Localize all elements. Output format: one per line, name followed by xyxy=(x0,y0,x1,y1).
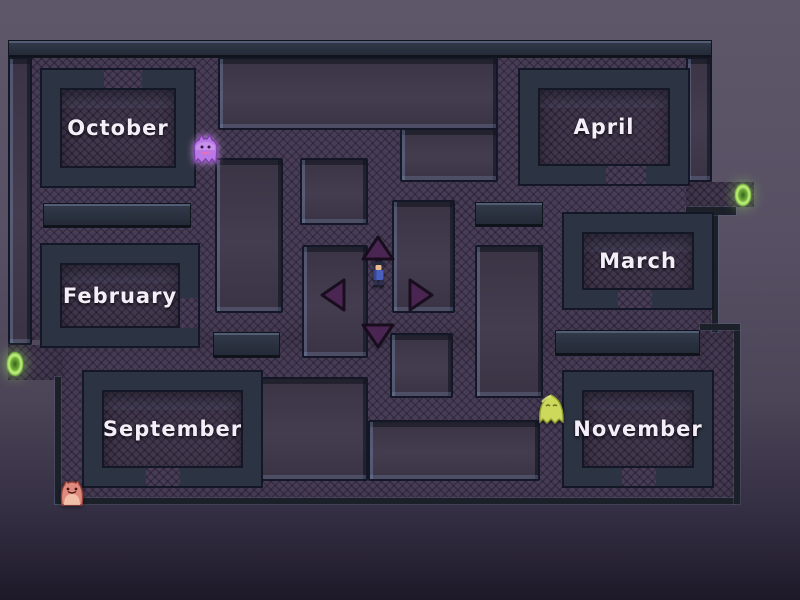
maze-wall xyxy=(258,377,368,481)
game-stage: October April February March September N… xyxy=(0,0,800,600)
red-monster-icon xyxy=(60,478,84,506)
maze-edge-ext-top xyxy=(700,324,740,330)
maze-edge-bottom xyxy=(55,498,734,504)
left-arrow-icon xyxy=(319,277,347,313)
room-label-september: September xyxy=(103,417,242,441)
maze-wall xyxy=(475,202,543,227)
maze-wall xyxy=(368,420,540,481)
right-arrow-button[interactable] xyxy=(407,259,435,295)
maze-wall xyxy=(215,158,283,313)
room-door-march xyxy=(618,290,652,308)
exit-portal-left xyxy=(4,348,26,380)
up-arrow-button[interactable] xyxy=(360,220,396,248)
room-door-april xyxy=(606,166,646,184)
maze-edge-right-lower xyxy=(734,330,740,504)
room-label-april: April xyxy=(573,115,634,139)
maze-wall xyxy=(400,128,498,182)
maze-wall xyxy=(390,333,453,398)
room-label-february: February xyxy=(63,284,177,308)
maze: October April February March September N… xyxy=(8,40,754,510)
room-april: April xyxy=(520,70,688,184)
maze-edge-right-mid xyxy=(712,212,718,332)
maze-wall-top-border xyxy=(8,40,712,58)
room-february: February xyxy=(42,245,198,346)
down-arrow-icon xyxy=(360,322,396,350)
maze-wall xyxy=(475,245,543,398)
room-door-october xyxy=(104,70,142,88)
left-arrow-button[interactable] xyxy=(319,259,347,295)
room-label-october: October xyxy=(67,116,168,140)
right-arrow-icon xyxy=(407,277,435,313)
room-label-march: March xyxy=(599,249,677,273)
room-label-november: November xyxy=(573,417,702,441)
maze-wall-left-border xyxy=(8,57,32,345)
maze-wall-right-border xyxy=(686,57,712,182)
purple-ghost-icon xyxy=(192,133,219,164)
room-door-february xyxy=(180,298,198,328)
red-monster-enemy xyxy=(60,478,84,506)
exit-portal-right xyxy=(732,180,754,210)
room-door-september xyxy=(146,468,180,486)
yellow-ghost-icon xyxy=(538,392,565,424)
maze-wall xyxy=(213,332,280,358)
maze-wall xyxy=(218,57,498,130)
purple-ghost-enemy xyxy=(192,133,219,164)
maze-wall xyxy=(555,330,700,356)
down-arrow-button[interactable] xyxy=(360,308,396,336)
yellow-ghost-enemy xyxy=(538,392,565,424)
maze-wall xyxy=(300,158,368,225)
maze-wall xyxy=(43,203,191,228)
room-door-november xyxy=(622,468,656,486)
up-arrow-icon xyxy=(360,234,396,262)
